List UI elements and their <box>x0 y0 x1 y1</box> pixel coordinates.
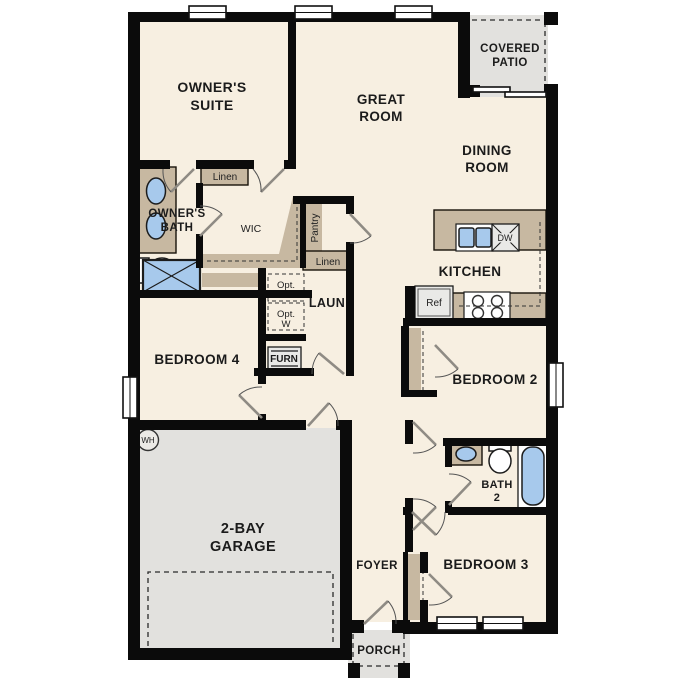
window-icon <box>295 6 332 19</box>
room-label-owners-suite: SUITE <box>190 97 233 113</box>
room-label-owners-suite: OWNER'S <box>177 79 246 95</box>
kitchen-sink-icon <box>456 224 493 251</box>
room-label-garage: 2-BAY <box>221 521 265 537</box>
room-label-owners-bath: OWNER'S <box>148 208 205 220</box>
room-label-covered-patio: COVERED <box>480 43 540 55</box>
refrigerator-icon: Ref <box>415 286 453 319</box>
room-label-bath2: BATH <box>481 479 512 491</box>
covered-patio-floor <box>470 15 548 97</box>
floor-plan: DW Ref Opt. D Opt. W FURN <box>0 0 687 687</box>
window-icon <box>123 377 137 418</box>
bath-sink-icon <box>147 178 166 204</box>
bedroom2-closet <box>409 328 421 392</box>
room-label-bath2: 2 <box>494 492 501 504</box>
refrigerator-label: Ref <box>426 298 442 309</box>
room-label-covered-patio: PATIO <box>492 57 527 69</box>
window-icon <box>189 6 226 19</box>
window-icon <box>483 617 523 630</box>
floor-plan-page: DW Ref Opt. D Opt. W FURN <box>0 0 687 687</box>
window-icon <box>395 6 432 19</box>
room-label-porch: PORCH <box>357 645 401 657</box>
room-label-dining-room: ROOM <box>465 160 509 175</box>
room-label-kitchen: KITCHEN <box>439 264 502 279</box>
dishwasher-icon: DW <box>492 224 519 251</box>
room-label-bedroom4: BEDROOM 4 <box>154 352 239 367</box>
window-icon <box>549 363 563 407</box>
room-label-laundry: LAUN <box>309 296 345 310</box>
room-label-great-room: GREAT <box>357 92 406 107</box>
bedroom3-closet <box>408 554 420 620</box>
room-label-bedroom2: BEDROOM 2 <box>452 372 537 387</box>
dishwasher-label: DW <box>498 233 513 243</box>
closet-label-pantry: Pantry <box>310 214 321 243</box>
closet-label-linen-top: Linen <box>213 172 237 183</box>
window-icon <box>437 617 477 630</box>
room-label-wic: WIC <box>241 223 262 235</box>
opt-washer-label-2: W <box>282 319 291 330</box>
room-label-great-room: ROOM <box>359 109 403 124</box>
bathtub-icon <box>518 443 548 509</box>
room-label-owners-bath: BATH <box>161 222 194 234</box>
room-label-dining-room: DINING <box>462 143 512 158</box>
furnace-icon: FURN <box>268 347 301 370</box>
water-heater-label: WH <box>141 436 155 445</box>
bath2-sink-icon <box>456 447 476 461</box>
closet-label-linen-hall: Linen <box>316 257 340 268</box>
room-label-foyer: FOYER <box>356 560 398 572</box>
wic-shelf-lower <box>202 273 264 287</box>
room-label-bedroom3: BEDROOM 3 <box>443 557 528 572</box>
furnace-label: FURN <box>270 354 298 365</box>
shower-icon <box>143 260 200 292</box>
room-label-garage: GARAGE <box>210 539 276 555</box>
water-heater-icon: WH <box>138 430 159 451</box>
